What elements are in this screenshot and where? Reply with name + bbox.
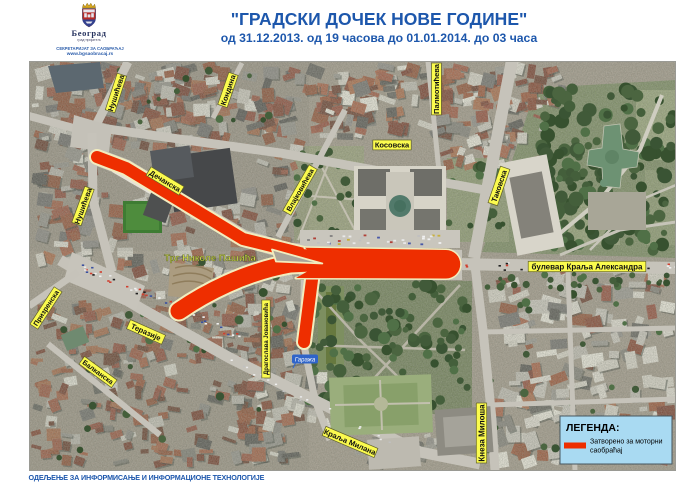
svg-text:ЛЕГЕНДА:: ЛЕГЕНДА:	[566, 422, 619, 434]
svg-text:Гаража: Гаража	[295, 358, 316, 364]
svg-text:Трг Николе Пашића: Трг Николе Пашића	[164, 253, 256, 264]
svg-text:саобраћај: саобраћај	[590, 447, 623, 455]
svg-text:Драгослава Јовановића: Драгослава Јовановића	[263, 302, 270, 375]
svg-text:Палмотићева: Палмотићева	[432, 63, 441, 114]
svg-text:Кнеза Милоша: Кнеза Милоша	[477, 404, 486, 462]
svg-text:Затворено за моторни: Затворено за моторни	[590, 439, 663, 446]
svg-text:булевар Краља Александра: булевар Краља Александра	[532, 262, 644, 271]
svg-text:Косовска: Косовска	[375, 141, 410, 150]
